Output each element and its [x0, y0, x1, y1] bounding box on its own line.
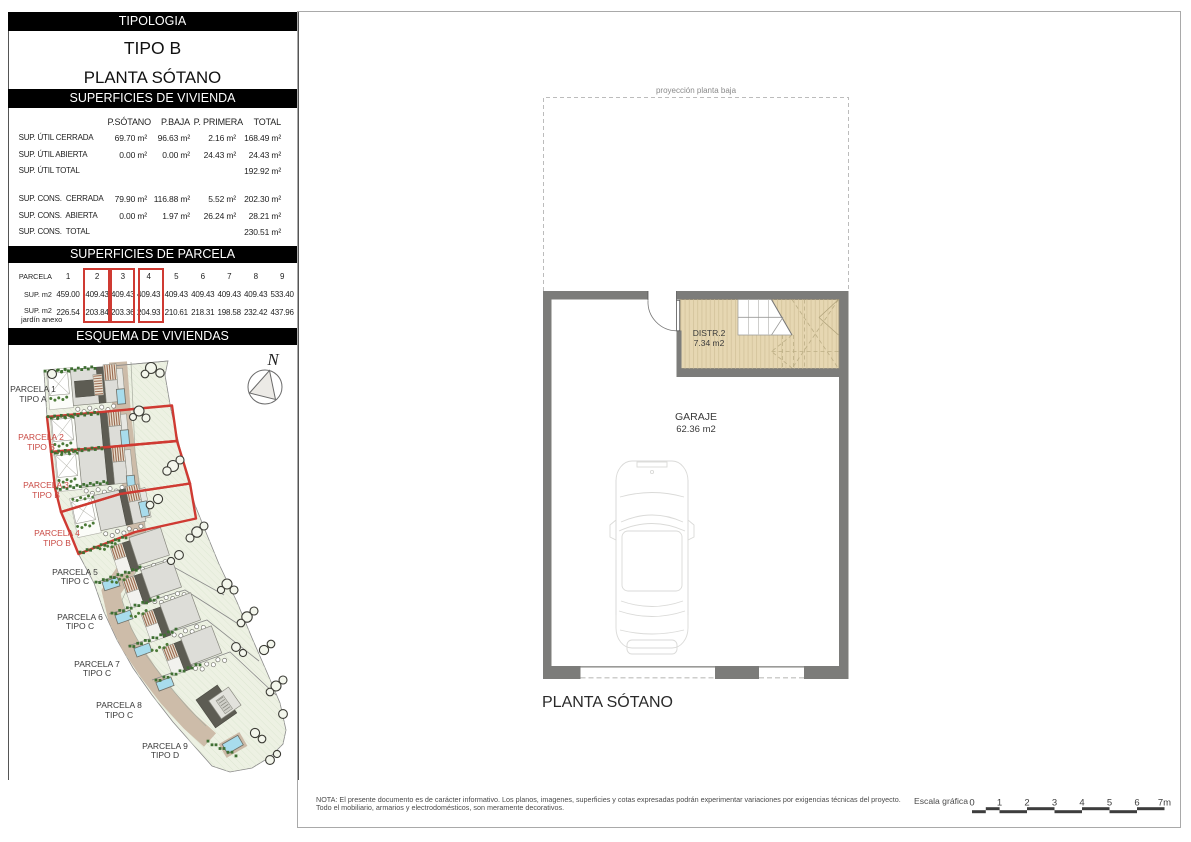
svg-text:7m: 7m [1158, 798, 1171, 809]
svg-text:0: 0 [969, 798, 974, 809]
svg-text:3: 3 [1052, 798, 1057, 809]
svg-text:2: 2 [1024, 798, 1029, 809]
svg-text:4: 4 [1079, 798, 1084, 809]
svg-text:6: 6 [1134, 798, 1139, 809]
svg-text:5: 5 [1107, 798, 1112, 809]
svg-text:1: 1 [997, 798, 1002, 809]
